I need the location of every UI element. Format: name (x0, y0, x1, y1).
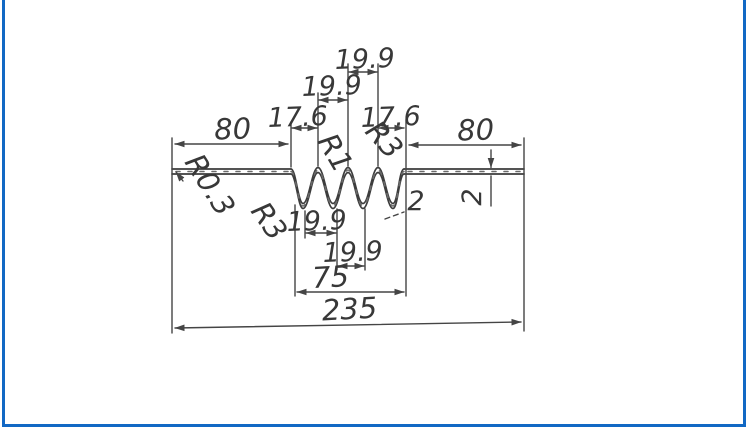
wave-thickness-leader (385, 212, 404, 219)
corrugation-span-label: 75 (311, 259, 350, 295)
overall-width-label: 235 (321, 291, 378, 328)
bottom-pitch-1-label: 19.9 (286, 205, 347, 238)
wave-thickness-label: 2 (407, 186, 424, 217)
right-flange (404, 169, 524, 174)
top-pitch-top-label: 19.9 (334, 43, 395, 76)
engineering-sketch: 80 17.6 19.9 19.9 17.6 80 19.9 19.9 75 2… (0, 0, 750, 429)
scanned-sketch-page: 80 17.6 19.9 19.9 17.6 80 19.9 19.9 75 2… (0, 0, 750, 429)
corrugation-wave (291, 168, 404, 209)
left-valley-radius-label: R3 (244, 196, 294, 247)
flange-edge-radius-label: R0.3 (178, 148, 242, 222)
top-pitch-left-label: 17.6 (267, 101, 328, 134)
flange-thickness-label: 2 (457, 188, 488, 205)
left-flange-width-label: 80 (214, 111, 252, 146)
right-flange-width-label: 80 (457, 112, 495, 147)
